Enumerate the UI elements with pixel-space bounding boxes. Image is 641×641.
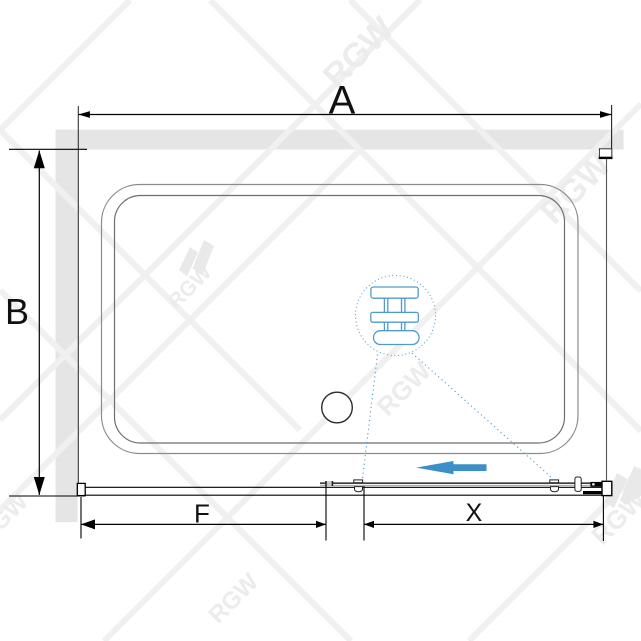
svg-text:X: X <box>466 499 483 527</box>
svg-text:F: F <box>194 499 210 529</box>
svg-text:A: A <box>329 79 356 123</box>
svg-text:B: B <box>5 291 29 332</box>
